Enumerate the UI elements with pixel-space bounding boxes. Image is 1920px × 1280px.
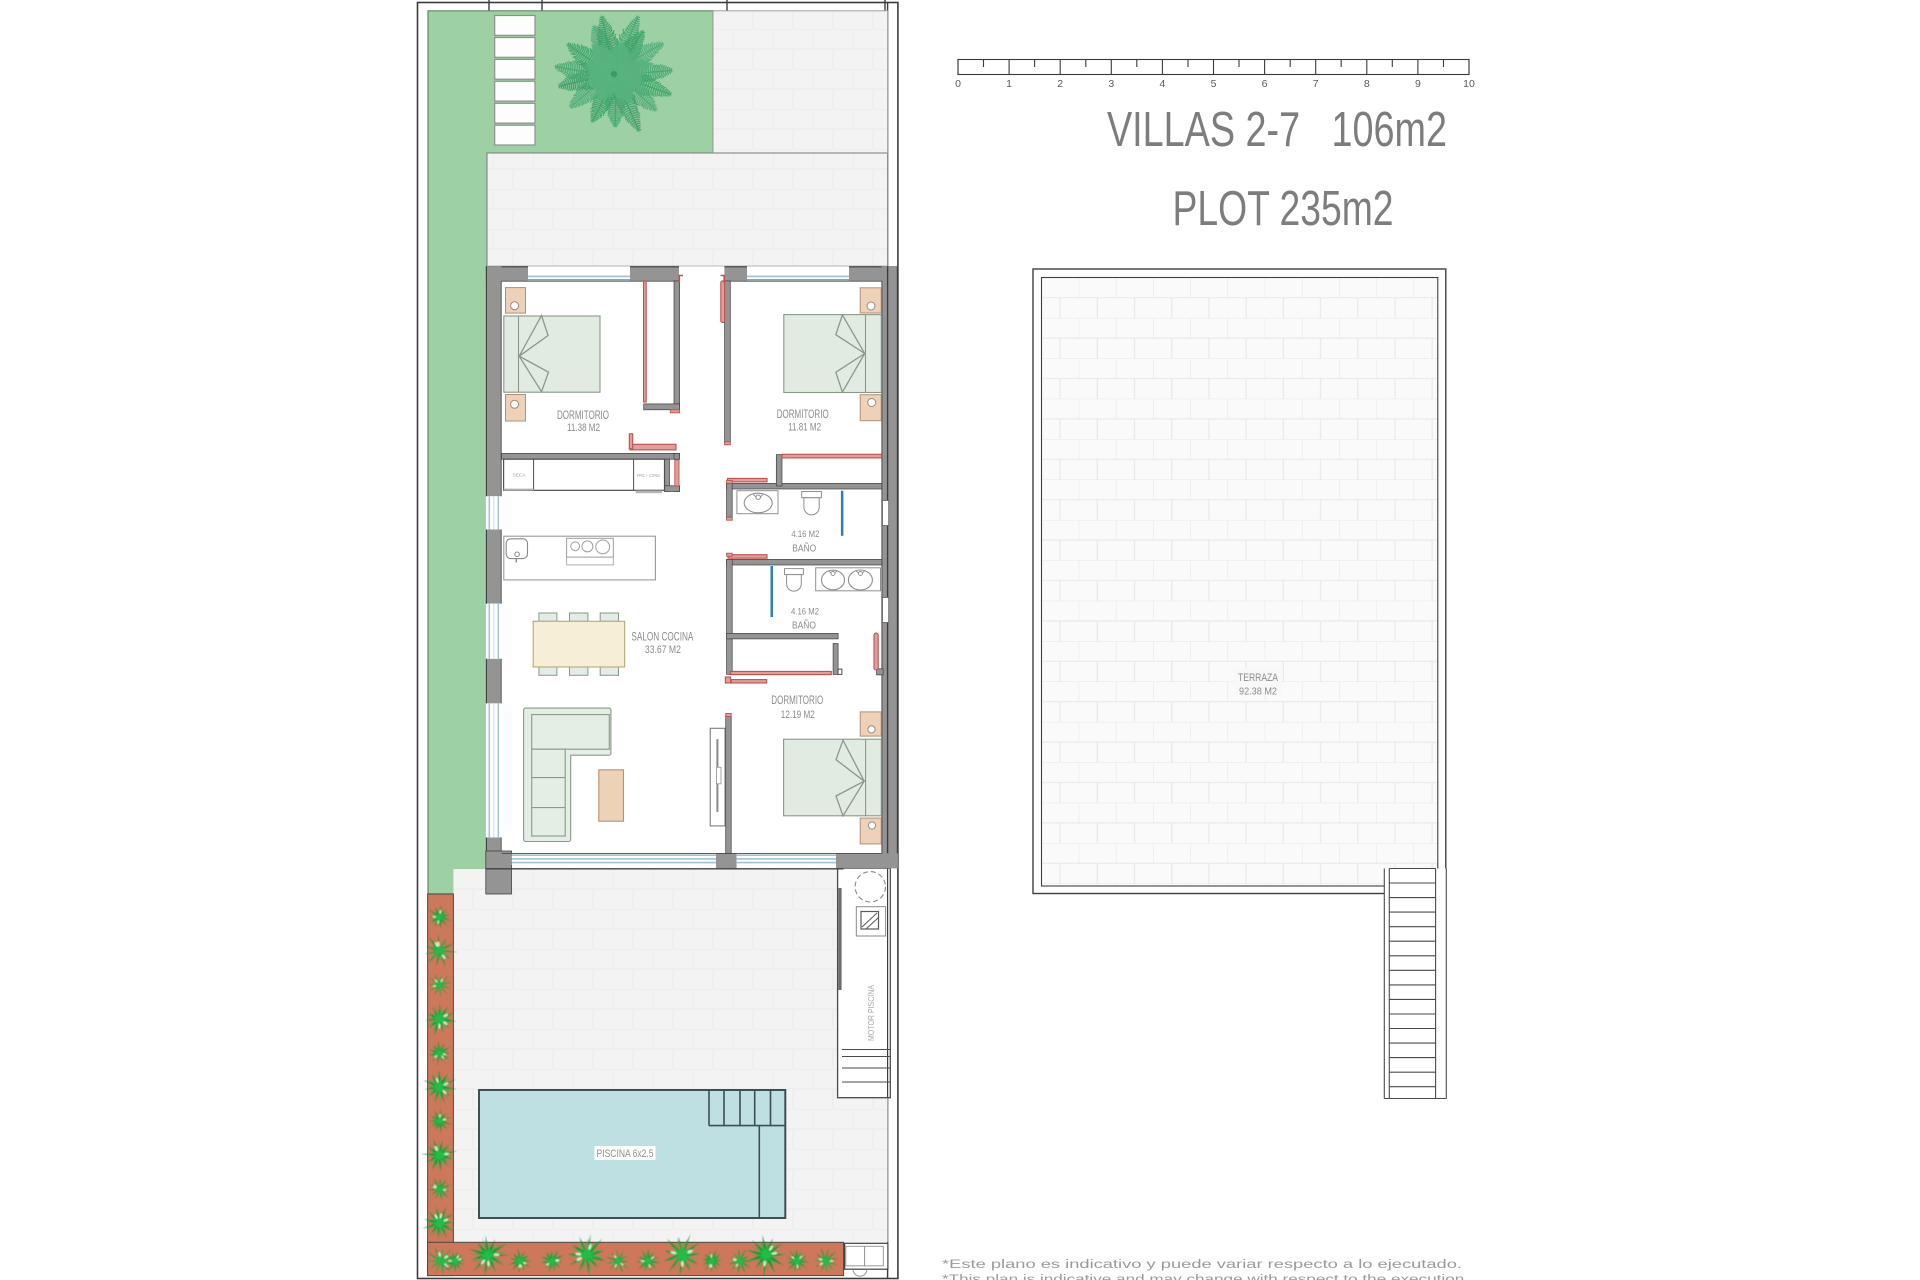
svg-text:11.81 M2: 11.81 M2 — [788, 422, 821, 434]
svg-text:5: 5 — [1211, 78, 1217, 90]
svg-text:FRG + CONG: FRG + CONG — [637, 473, 660, 478]
svg-text:VILLAS 2-7 106m2: VILLAS 2-7 106m2 — [1107, 103, 1447, 157]
svg-text:MOTOR PISCINA: MOTOR PISCINA — [867, 984, 876, 1041]
svg-text:11.38 M2: 11.38 M2 — [567, 422, 600, 434]
svg-text:10: 10 — [1463, 78, 1475, 90]
svg-text:0: 0 — [955, 78, 961, 90]
svg-text:SALON COCINA: SALON COCINA — [631, 630, 693, 644]
svg-text:BAÑO: BAÑO — [792, 542, 816, 555]
svg-text:DORMITORIO: DORMITORIO — [557, 408, 609, 422]
svg-text:3: 3 — [1108, 78, 1114, 90]
svg-text:DORMITORIO: DORMITORIO — [771, 693, 823, 707]
svg-text:92.38 M2: 92.38 M2 — [1239, 686, 1277, 698]
svg-text:8: 8 — [1364, 78, 1370, 90]
svg-text:7: 7 — [1313, 78, 1319, 90]
svg-text:4.16 M2: 4.16 M2 — [791, 529, 819, 540]
svg-text:33.67 M2: 33.67 M2 — [645, 644, 681, 656]
svg-text:BAÑO: BAÑO — [792, 619, 816, 632]
svg-text:*This plan is indicative and m: *This plan is indicative and may change … — [942, 1274, 1469, 1280]
svg-text:2: 2 — [1057, 78, 1063, 90]
svg-text:6: 6 — [1262, 78, 1268, 90]
svg-text:PISCINA 6x2.5: PISCINA 6x2.5 — [597, 1148, 654, 1160]
svg-text:*Este plano es indicativo y pu: *Este plano es indicativo y puede variar… — [942, 1259, 1462, 1271]
svg-text:TERRAZA: TERRAZA — [1238, 672, 1279, 684]
svg-text:4: 4 — [1159, 78, 1165, 90]
svg-text:SECA: SECA — [513, 473, 527, 478]
svg-text:4.16 M2: 4.16 M2 — [791, 607, 819, 618]
svg-text:9: 9 — [1415, 78, 1421, 90]
svg-text:12.19 M2: 12.19 M2 — [781, 709, 815, 721]
svg-text:DORMITORIO: DORMITORIO — [777, 407, 829, 421]
svg-text:PLOT 235m2: PLOT 235m2 — [1173, 182, 1394, 236]
svg-text:1: 1 — [1006, 78, 1012, 90]
